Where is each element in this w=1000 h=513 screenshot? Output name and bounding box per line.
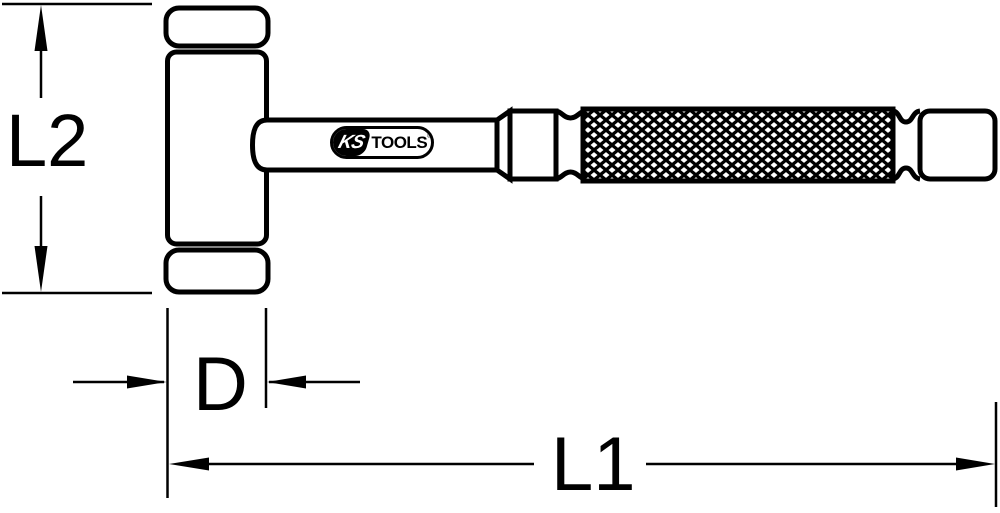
d-arrowhead-right (267, 376, 306, 389)
hammer-head-bottom-cap (166, 250, 268, 292)
l1-arrowhead-left (169, 458, 209, 471)
technical-drawing-hammer: L2 D (0, 0, 1000, 513)
l1-label: L1 (551, 422, 636, 507)
registered-trademark-icon: ® (427, 133, 432, 140)
logo-ks-blob: KS (330, 129, 372, 156)
d-arrowhead-left (127, 376, 167, 389)
logo-tools-text: TOOLS (371, 134, 427, 151)
knurled-grip (583, 109, 893, 181)
l2-arrowhead-down (35, 246, 48, 292)
l1-arrowhead-right (956, 458, 995, 471)
handle-end-cap (920, 111, 995, 179)
hammer-line-drawing: L2 D (0, 0, 1000, 513)
brand-logo: KS TOOLS ® (330, 126, 434, 159)
d-label: D (193, 342, 248, 427)
l2-arrowhead-up (35, 5, 48, 51)
handle-collar (510, 111, 556, 179)
hammer-head-top-cap (166, 8, 268, 46)
logo-ks-text: KS (336, 133, 366, 152)
l2-label: L2 (6, 99, 88, 182)
handle-waist-right-top (893, 111, 920, 122)
handle-waist-right-bottom (893, 168, 920, 179)
